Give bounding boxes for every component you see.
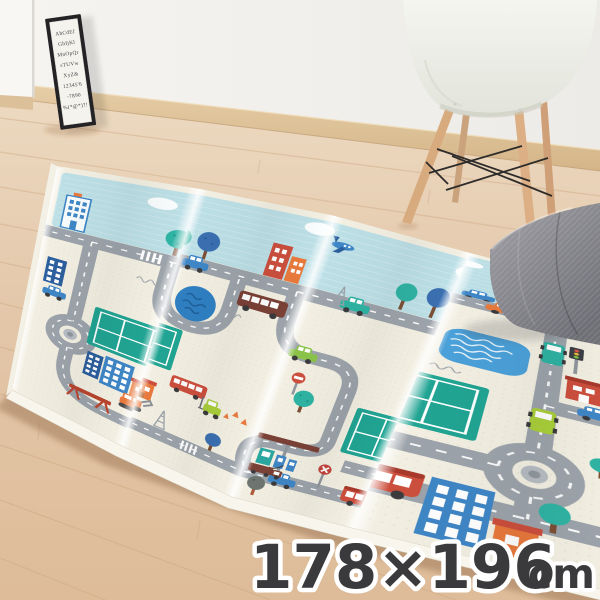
- play-mat: [0, 0, 600, 600]
- product-photo: AbCdEf GhIjKl MnOpQr sTUVw XyZ& 12345'6 …: [0, 0, 600, 600]
